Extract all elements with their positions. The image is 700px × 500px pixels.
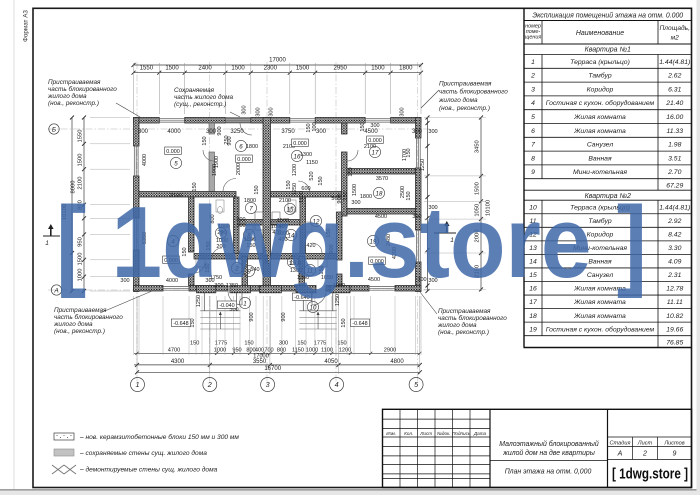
- svg-text:Наименование: Наименование: [576, 30, 624, 37]
- svg-text:300: 300: [400, 107, 406, 116]
- svg-text:150: 150: [348, 167, 354, 176]
- svg-text:Листов: Листов: [663, 440, 684, 446]
- svg-text:2.62: 2.62: [667, 73, 681, 80]
- svg-text:Гостиная с кухон. оборудование: Гостиная с кухон. оборудованием: [546, 99, 655, 107]
- svg-text:Сохраняемая: Сохраняемая: [174, 87, 215, 94]
- svg-text:950: 950: [232, 348, 241, 354]
- svg-text:2: 2: [207, 380, 212, 389]
- svg-text:2.92: 2.92: [667, 218, 681, 225]
- svg-text:8: 8: [531, 155, 535, 162]
- svg-text:Дата: Дата: [473, 431, 487, 436]
- svg-text:1500: 1500: [231, 66, 245, 72]
- svg-text:Жилая комната: Жилая комната: [573, 114, 626, 121]
- svg-text:Пристраиваемая: Пристраиваемая: [48, 79, 101, 86]
- svg-text:Жилая комната: Жилая комната: [573, 299, 626, 306]
- svg-text:19.66: 19.66: [666, 326, 683, 333]
- svg-text:1550: 1550: [77, 130, 83, 143]
- svg-text:11.33: 11.33: [666, 128, 683, 135]
- svg-text:300: 300: [242, 105, 248, 114]
- svg-text:1: 1: [45, 240, 49, 247]
- svg-text:4700: 4700: [168, 348, 180, 354]
- svg-text:Жилая комната: Жилая комната: [573, 313, 626, 320]
- svg-text:2: 2: [530, 73, 535, 80]
- svg-text:0.000: 0.000: [166, 149, 180, 155]
- svg-text:м2: м2: [671, 35, 680, 42]
- svg-text:900: 900: [227, 136, 233, 145]
- svg-text:6: 6: [239, 143, 243, 150]
- svg-text:Терраса (крыльцо): Терраса (крыльцо): [570, 59, 630, 66]
- svg-text:1000: 1000: [214, 348, 226, 354]
- svg-text:4050: 4050: [324, 359, 338, 365]
- svg-text:0.000: 0.000: [368, 138, 382, 144]
- svg-text:1150: 1150: [292, 348, 304, 354]
- svg-text:300: 300: [268, 107, 274, 116]
- svg-text:жилого дома: жилого дома: [53, 320, 93, 328]
- svg-text:4300: 4300: [171, 359, 185, 365]
- svg-text:3450: 3450: [474, 140, 480, 153]
- svg-text:150: 150: [337, 341, 346, 347]
- svg-text:Лист: Лист: [419, 431, 432, 436]
- svg-text:1: 1: [243, 300, 246, 307]
- svg-text:5: 5: [174, 160, 178, 167]
- svg-text:3: 3: [266, 380, 270, 389]
- svg-text:19: 19: [529, 326, 537, 333]
- svg-text:16.00: 16.00: [666, 114, 683, 121]
- svg-text:Пристраиваемая: Пристраиваемая: [438, 308, 491, 315]
- svg-text:76.85: 76.85: [666, 340, 683, 347]
- svg-text:150: 150: [202, 136, 208, 145]
- svg-text:150: 150: [190, 341, 199, 347]
- svg-text:300: 300: [412, 129, 423, 135]
- svg-text:-0.040: -0.040: [219, 303, 234, 309]
- svg-text:520: 520: [309, 171, 315, 180]
- svg-text:3.51: 3.51: [668, 155, 681, 162]
- svg-text:17: 17: [529, 299, 537, 306]
- svg-text:Санузел: Санузел: [587, 142, 614, 149]
- svg-text:Квартира №1: Квартира №1: [585, 46, 631, 53]
- svg-text:1200: 1200: [292, 164, 298, 176]
- svg-text:часть блокированного: часть блокированного: [54, 313, 123, 321]
- svg-text:– сохраняемые стены сущ. жило: – сохраняемые стены сущ. жилого дома: [79, 449, 207, 457]
- svg-text:16700: 16700: [264, 366, 281, 372]
- svg-text:3250: 3250: [230, 129, 244, 135]
- svg-text:Изм.: Изм.: [386, 431, 396, 436]
- svg-text:1800: 1800: [246, 144, 258, 150]
- svg-text:4: 4: [531, 100, 535, 107]
- svg-text:4500: 4500: [364, 129, 378, 135]
- svg-text:1000: 1000: [306, 348, 318, 354]
- svg-text:А: А: [617, 450, 623, 457]
- svg-text:3570: 3570: [376, 176, 388, 182]
- svg-text:7: 7: [531, 142, 535, 149]
- svg-text:67.29: 67.29: [666, 183, 683, 190]
- svg-text:Тамбур: Тамбур: [588, 72, 612, 80]
- svg-text:2.31: 2.31: [667, 272, 681, 279]
- svg-text:(нов., реконстр.): (нов., реконстр.): [54, 328, 105, 335]
- svg-text:[ 1dwg.store ]: [ 1dwg.store ]: [612, 467, 688, 483]
- svg-text:9: 9: [531, 169, 535, 176]
- svg-text:9: 9: [673, 450, 677, 457]
- svg-text:жилого дома: жилого дома: [438, 96, 478, 104]
- svg-text:12.78: 12.78: [666, 286, 683, 293]
- svg-text:6: 6: [531, 128, 535, 135]
- svg-text:Кол.: Кол.: [404, 431, 413, 436]
- svg-text:0.000: 0.000: [237, 157, 251, 163]
- svg-text:2000: 2000: [236, 163, 242, 175]
- svg-text:4000: 4000: [142, 154, 148, 166]
- svg-text:300: 300: [138, 129, 149, 135]
- svg-text:300: 300: [256, 107, 262, 116]
- svg-text:800: 800: [277, 348, 286, 354]
- svg-text:2400: 2400: [198, 66, 212, 72]
- svg-text:17000: 17000: [269, 58, 286, 64]
- svg-text:1.98: 1.98: [668, 142, 681, 149]
- svg-text:-0.648: -0.648: [352, 321, 367, 327]
- svg-text:4.09: 4.09: [668, 259, 681, 266]
- svg-text:17: 17: [372, 149, 379, 156]
- svg-text:4000: 4000: [167, 129, 181, 135]
- svg-text:(нов., реконстр.): (нов., реконстр.): [48, 100, 99, 107]
- svg-text:3750: 3750: [281, 129, 295, 135]
- svg-text:900: 900: [217, 126, 223, 135]
- svg-text:Жилая комната: Жилая комната: [573, 128, 626, 135]
- svg-text:150: 150: [244, 341, 253, 347]
- svg-text:900: 900: [249, 312, 255, 321]
- svg-text:Гостиная с кухон. оборудование: Гостиная с кухон. оборудованием: [546, 325, 655, 333]
- svg-text:часть жилого дома: часть жилого дома: [174, 93, 234, 101]
- svg-text:150: 150: [360, 122, 366, 131]
- svg-text:Ванная: Ванная: [588, 155, 612, 162]
- svg-text:1800: 1800: [399, 66, 413, 72]
- svg-text:часть блокированного: часть блокированного: [439, 88, 508, 96]
- svg-text:10.82: 10.82: [666, 313, 683, 320]
- svg-text:1500: 1500: [77, 154, 83, 167]
- svg-text:Пристраиваемая: Пристраиваемая: [439, 81, 492, 88]
- svg-text:1550: 1550: [140, 66, 154, 72]
- svg-text:150: 150: [341, 318, 347, 327]
- svg-text:11.11: 11.11: [667, 299, 683, 306]
- svg-text:часть блокированного: часть блокированного: [438, 314, 507, 322]
- svg-text:(сущ., реконстр.): (сущ., реконстр.): [174, 101, 226, 108]
- svg-text:1900: 1900: [212, 164, 218, 176]
- svg-text:жилого дома: жилого дома: [47, 92, 87, 100]
- svg-text:Б: Б: [52, 126, 56, 133]
- svg-text:Стадия: Стадия: [610, 440, 631, 446]
- svg-text:300: 300: [206, 129, 217, 135]
- svg-text:(нов., реконстр.): (нов., реконстр.): [438, 329, 489, 336]
- svg-text:1: 1: [531, 59, 535, 66]
- svg-text:16: 16: [294, 153, 301, 160]
- svg-text:1775: 1775: [314, 341, 326, 347]
- svg-text:[ 1dwg.store ]: [ 1dwg.store ]: [56, 187, 647, 299]
- svg-text:Пристраиваемая: Пристраиваемая: [54, 307, 107, 314]
- svg-text:– нов. керамзитобетонные блок: – нов. керамзитобетонные блоки 150 мм и …: [79, 433, 239, 441]
- svg-text:Мини-котельная: Мини-котельная: [573, 169, 627, 176]
- svg-text:5: 5: [531, 114, 535, 121]
- svg-text:1500: 1500: [296, 66, 310, 72]
- svg-text:-0.648: -0.648: [173, 321, 188, 327]
- svg-text:2900: 2900: [384, 348, 396, 354]
- svg-text:Подпись: Подпись: [452, 431, 471, 436]
- svg-text:150: 150: [306, 123, 312, 132]
- svg-text:100: 100: [312, 122, 318, 131]
- svg-text:1100: 1100: [321, 348, 333, 354]
- svg-text:3: 3: [531, 86, 535, 93]
- svg-text:3550: 3550: [253, 359, 267, 365]
- svg-text:1: 1: [136, 380, 140, 389]
- svg-text:Коридор: Коридор: [587, 85, 614, 93]
- svg-text:2: 2: [642, 450, 647, 457]
- svg-text:1500: 1500: [371, 66, 385, 72]
- svg-text:900: 900: [281, 312, 287, 321]
- svg-text:Лист: Лист: [637, 440, 653, 446]
- svg-text:Экспликация помещений этажа на: Экспликация помещений этажа на отм. 0.00…: [532, 11, 683, 19]
- svg-text:часть блокированного: часть блокированного: [48, 85, 117, 93]
- svg-text:1250: 1250: [420, 159, 426, 171]
- svg-text:6.31: 6.31: [668, 86, 681, 93]
- svg-text:2300: 2300: [264, 66, 278, 72]
- svg-text:0.000: 0.000: [293, 141, 307, 147]
- svg-text:жилого дома: жилого дома: [437, 321, 477, 329]
- svg-text:1500: 1500: [165, 66, 179, 72]
- svg-text:150: 150: [318, 176, 324, 185]
- svg-text:№док.: №док.: [437, 431, 451, 436]
- svg-text:2.70: 2.70: [667, 169, 681, 176]
- svg-text:1200: 1200: [339, 348, 351, 354]
- svg-text:4800: 4800: [390, 359, 404, 365]
- svg-text:1.44(4.81): 1.44(4.81): [659, 59, 690, 66]
- svg-text:300: 300: [428, 129, 437, 135]
- svg-text:жилой дом на две квартиры: жилой дом на две квартиры: [502, 449, 595, 457]
- svg-text:щения: щения: [525, 35, 542, 41]
- svg-text:Малоэтажный блокированный: Малоэтажный блокированный: [499, 440, 599, 448]
- svg-text:300: 300: [279, 341, 288, 347]
- svg-text:2950: 2950: [334, 66, 348, 72]
- svg-text:– демонтируемые стены сущ. жи: – демонтируемые стены сущ. жилого дома: [79, 466, 218, 474]
- svg-text:(нов., реконстр.): (нов., реконстр.): [439, 105, 490, 112]
- svg-text:150: 150: [406, 148, 412, 157]
- svg-text:Площадь,: Площадь,: [660, 24, 691, 32]
- svg-text:150: 150: [297, 341, 306, 347]
- svg-text:10: 10: [310, 304, 317, 311]
- svg-text:1150: 1150: [306, 160, 318, 166]
- svg-text:21.40: 21.40: [665, 100, 683, 107]
- svg-text:8.42: 8.42: [668, 231, 681, 238]
- svg-text:3.30: 3.30: [668, 245, 681, 252]
- svg-text:300: 300: [370, 123, 379, 129]
- svg-text:Формат А3: Формат А3: [23, 10, 30, 42]
- svg-text:18: 18: [529, 313, 537, 320]
- svg-text:План этажа на отм. 0,000: План этажа на отм. 0,000: [505, 469, 592, 476]
- svg-text:4: 4: [335, 380, 339, 389]
- svg-text:1.44(4.81): 1.44(4.81): [659, 204, 690, 211]
